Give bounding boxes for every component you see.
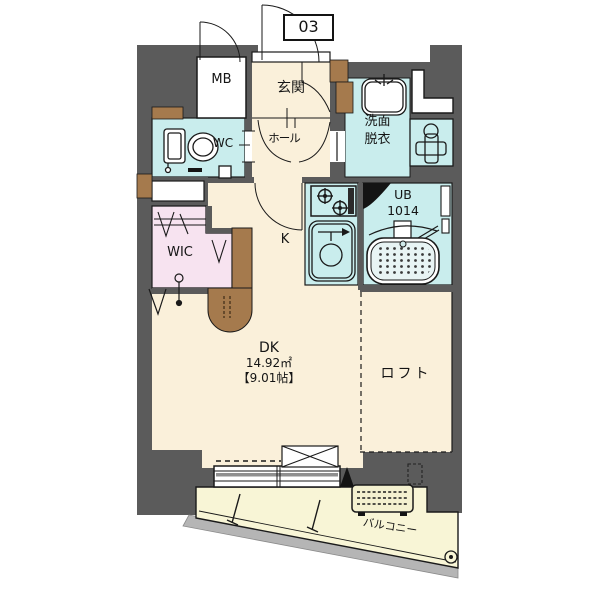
kitchen-label: K [274, 232, 296, 247]
wc-control-box [219, 166, 231, 178]
washroom-label-line2: 脱衣 [345, 131, 410, 149]
meter-box-label: MB [197, 72, 246, 87]
dk-label: DK [208, 341, 330, 356]
floorplan-canvas: 03 MB 玄関 WC ホール 洗面 脱衣 UB 1014 WIC K DK 1… [0, 0, 600, 600]
stove-fixture [311, 186, 356, 216]
unit-number-badge: 03 [283, 14, 334, 41]
wall-kitchen-ub [358, 183, 363, 290]
wall-ub-bottom [360, 285, 455, 292]
hall-label: ホール [252, 132, 316, 146]
washbasin-fixture [362, 74, 406, 115]
unit-bath-label-line2: 1014 [375, 203, 431, 219]
shelf [152, 181, 204, 201]
kitchen-sink-fixture [309, 221, 355, 281]
toilet-label: WC [206, 136, 240, 150]
unit-bath-label: UB 1014 [375, 187, 431, 219]
unit-bath-label-line1: UB [375, 187, 431, 203]
washing-machine-pan [410, 119, 453, 166]
toilet-vent [188, 168, 202, 172]
washroom-label: 洗面 脱衣 [345, 113, 410, 149]
loft-label: ロフト [360, 366, 452, 383]
wc-doorway [245, 131, 252, 162]
ub-controls [441, 186, 450, 233]
ac-outdoor-unit [352, 485, 413, 516]
washroom-label-line1: 洗面 [345, 113, 410, 131]
dk-area-sqm: 14.92㎡ [208, 356, 330, 371]
meter-box [197, 57, 246, 118]
entrance-label: 玄関 [252, 80, 330, 97]
balcony-window [214, 466, 340, 487]
hall-dk-opening [254, 177, 302, 183]
hatch-box [282, 446, 338, 467]
dk-label-block: DK 14.92㎡ 【9.01帖】 [208, 341, 330, 386]
dk-area-tatami: 【9.01帖】 [208, 371, 330, 386]
balcony-drain-icon [445, 551, 457, 563]
wall-wic-bottom [152, 288, 210, 294]
bathtub-fixture [367, 238, 439, 284]
wic-label: WIC [152, 245, 208, 260]
